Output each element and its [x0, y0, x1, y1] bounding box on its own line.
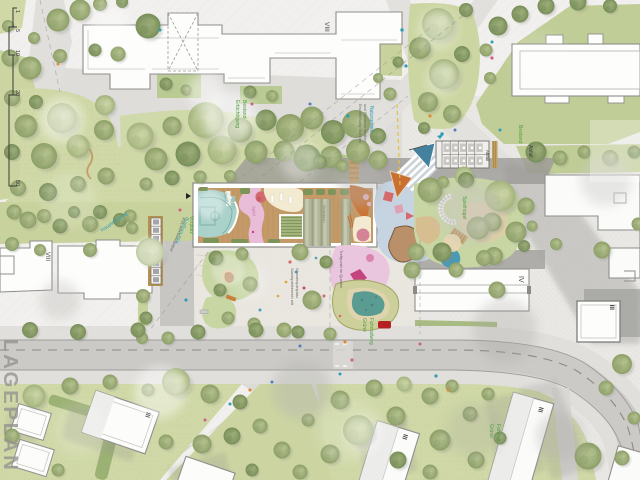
svg-text:Sandspielbereich mit: Sandspielbereich mit — [290, 268, 295, 306]
svg-text:Abfall: Abfall — [527, 145, 533, 158]
svg-text:Gründach: Gründach — [322, 205, 327, 223]
svg-text:50: 50 — [14, 180, 20, 186]
svg-text:10: 10 — [14, 50, 20, 56]
svg-text:Grüne: Grüne — [488, 424, 494, 438]
svg-text:Fahrradweg: Fahrradweg — [368, 318, 374, 345]
svg-text:20: 20 — [14, 90, 20, 96]
svg-text:5: 5 — [14, 29, 20, 32]
svg-text:Spielhügel: Spielhügel — [461, 196, 467, 219]
svg-text:Spiel: Spiel — [251, 206, 257, 216]
svg-text:1: 1 — [14, 10, 20, 13]
svg-text:IV: IV — [517, 276, 524, 283]
svg-text:Wasserspielplatz: Wasserspielplatz — [295, 268, 300, 298]
svg-text:Treffpunkt im Quartier: Treffpunkt im Quartier — [339, 250, 344, 289]
svg-text:Bestand: Bestand — [241, 100, 247, 119]
svg-text:LAGEPLAN: LAGEPLAN — [0, 339, 22, 473]
svg-text:Fahrrad: Fahrrad — [495, 424, 501, 442]
svg-text:Ertüchtigung: Ertüchtigung — [234, 100, 240, 128]
svg-text:und Gewerbe flexibel: und Gewerbe flexibel — [363, 104, 368, 142]
svg-text:VIII: VIII — [323, 22, 330, 32]
svg-text:Abfall: Abfall — [485, 150, 490, 161]
svg-text:Grüne: Grüne — [361, 318, 367, 332]
svg-text:Erschließung Wohnen: Erschließung Wohnen — [358, 104, 363, 143]
svg-text:Bestand: Bestand — [517, 125, 523, 144]
